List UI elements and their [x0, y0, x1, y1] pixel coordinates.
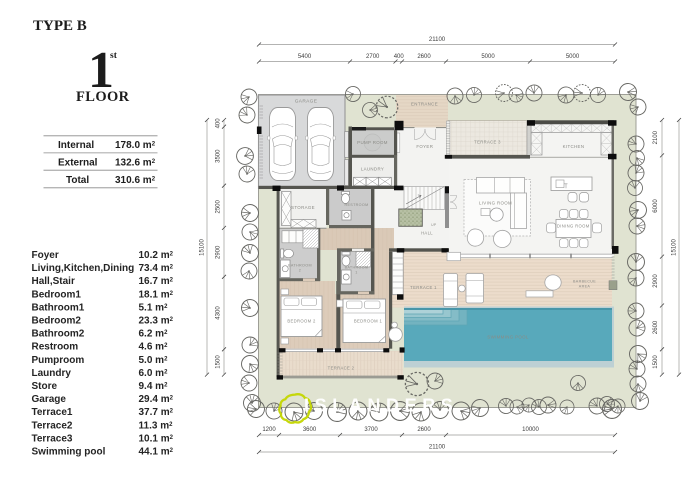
svg-text:BATHROOM: BATHROOM [345, 266, 369, 270]
svg-text:44.1 m2: 44.1 m2 [139, 447, 174, 458]
svg-text:3700: 3700 [364, 427, 378, 433]
svg-text:2100: 2100 [653, 130, 659, 144]
svg-text:BEDROOM 1: BEDROOM 1 [354, 319, 383, 324]
svg-text:1: 1 [355, 271, 357, 275]
svg-text:21100: 21100 [429, 37, 446, 43]
svg-text:2600: 2600 [653, 320, 659, 334]
svg-text:6.2 m2: 6.2 m2 [139, 329, 169, 340]
svg-text:Living,Kitchen,Dining: Living,Kitchen,Dining [32, 263, 135, 274]
svg-text:KITCHEN: KITCHEN [563, 144, 585, 149]
svg-text:Bedroom1: Bedroom1 [32, 289, 82, 300]
svg-text:ISLANDERS: ISLANDERS [304, 396, 458, 416]
svg-text:Bathroom1: Bathroom1 [32, 302, 85, 313]
svg-text:5000: 5000 [566, 54, 580, 60]
svg-text:2600: 2600 [417, 427, 431, 433]
svg-text:2700: 2700 [366, 54, 380, 60]
svg-text:16.7 m2: 16.7 m2 [139, 276, 174, 287]
svg-text:11.3 m2: 11.3 m2 [139, 420, 174, 431]
svg-text:Restroom: Restroom [32, 342, 79, 353]
svg-text:BEDROOM 2: BEDROOM 2 [287, 319, 316, 324]
svg-text:Terrace1: Terrace1 [32, 407, 73, 418]
svg-text:2900: 2900 [653, 274, 659, 288]
svg-text:10000: 10000 [522, 427, 539, 433]
svg-text:Garage: Garage [32, 394, 67, 405]
svg-text:1500: 1500 [653, 355, 659, 369]
svg-text:400: 400 [394, 54, 405, 60]
svg-text:Bathroom2: Bathroom2 [32, 329, 85, 340]
svg-text:st: st [110, 51, 118, 61]
svg-text:3500: 3500 [216, 149, 222, 163]
svg-text:Laundry: Laundry [32, 368, 72, 379]
svg-text:LAUNDRY: LAUNDRY [361, 167, 384, 172]
svg-text:2900: 2900 [216, 245, 222, 259]
svg-text:Terrace2: Terrace2 [32, 420, 73, 431]
svg-text:6000: 6000 [653, 199, 659, 213]
svg-text:3600: 3600 [303, 427, 317, 433]
svg-text:HALL: HALL [421, 231, 433, 236]
svg-text:400: 400 [216, 118, 222, 129]
svg-text:5.0 m2: 5.0 m2 [139, 355, 169, 366]
svg-text:6.0 m2: 6.0 m2 [139, 368, 169, 379]
svg-text:GARAGE: GARAGE [295, 99, 318, 105]
svg-text:TERRACE 1: TERRACE 1 [410, 285, 437, 290]
svg-text:PUMP ROOM: PUMP ROOM [357, 140, 388, 145]
svg-text:23.3 m2: 23.3 m2 [139, 316, 174, 327]
svg-text:TERRACE 2: TERRACE 2 [328, 366, 355, 371]
svg-text:AREA: AREA [579, 284, 591, 288]
svg-text:5000: 5000 [481, 54, 495, 60]
svg-text:UP: UP [431, 223, 437, 227]
svg-text:21100: 21100 [429, 445, 446, 451]
svg-text:4.6 m2: 4.6 m2 [139, 342, 169, 353]
svg-text:5.1 m2: 5.1 m2 [139, 302, 169, 313]
svg-text:178.0 m2: 178.0 m2 [115, 140, 156, 151]
svg-text:Hall,Stair: Hall,Stair [32, 276, 75, 287]
svg-text:STORAGE: STORAGE [291, 205, 315, 210]
svg-text:9.4 m2: 9.4 m2 [139, 381, 169, 392]
svg-text:Bedroom2: Bedroom2 [32, 316, 82, 327]
svg-text:15100: 15100 [672, 238, 678, 255]
svg-text:SWIMMING POOL: SWIMMING POOL [487, 335, 529, 340]
svg-text:Foyer: Foyer [32, 250, 59, 261]
svg-text:Swimming pool: Swimming pool [32, 447, 106, 458]
svg-text:37.7 m2: 37.7 m2 [139, 407, 174, 418]
svg-text:10.2 m2: 10.2 m2 [139, 250, 174, 261]
svg-text:1500: 1500 [216, 355, 222, 369]
svg-text:5400: 5400 [298, 54, 312, 60]
svg-text:1200: 1200 [262, 427, 276, 433]
svg-text:FOYER: FOYER [416, 144, 433, 149]
svg-text:Pumproom: Pumproom [32, 355, 85, 366]
svg-text:BATHROOM: BATHROOM [288, 264, 312, 268]
svg-text:Store: Store [32, 381, 58, 392]
svg-text:Terrace3: Terrace3 [32, 433, 73, 444]
svg-text:2: 2 [299, 269, 301, 273]
svg-text:ENTRANCE: ENTRANCE [411, 102, 438, 107]
svg-text:RESTROOM: RESTROOM [344, 203, 368, 207]
svg-text:2600: 2600 [417, 54, 431, 60]
svg-text:LIVING ROOM: LIVING ROOM [479, 201, 512, 206]
svg-text:15100: 15100 [200, 238, 206, 255]
svg-text:29.4 m2: 29.4 m2 [139, 394, 174, 405]
svg-text:73.4 m2: 73.4 m2 [139, 263, 174, 274]
svg-text:TERRACE 3: TERRACE 3 [474, 140, 501, 145]
svg-text:10.1 m2: 10.1 m2 [139, 433, 174, 444]
svg-text:132.6 m2: 132.6 m2 [115, 158, 156, 169]
svg-text:DINING ROOM: DINING ROOM [557, 224, 590, 229]
svg-text:Total: Total [66, 175, 89, 186]
svg-text:18.1 m2: 18.1 m2 [139, 289, 174, 300]
svg-text:External: External [58, 158, 98, 169]
svg-text:310.6 m2: 310.6 m2 [115, 175, 156, 186]
svg-text:FLOOR: FLOOR [76, 89, 130, 105]
svg-text:2500: 2500 [216, 199, 222, 213]
svg-text:TYPE B: TYPE B [33, 18, 87, 34]
svg-text:BARBECUE: BARBECUE [573, 279, 596, 283]
svg-text:4300: 4300 [216, 306, 222, 320]
svg-text:Internal: Internal [58, 140, 94, 151]
